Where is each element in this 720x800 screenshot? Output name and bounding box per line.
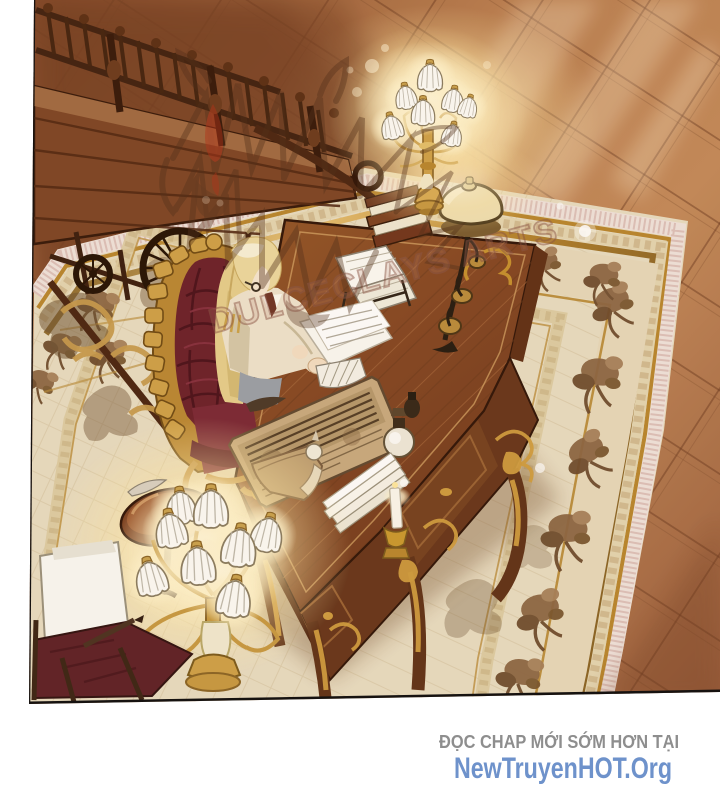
svg-text:ĐỌC CHAP MỚI SỚM HƠN TẠI: ĐỌC CHAP MỚI SỚM HƠN TẠI bbox=[439, 731, 679, 752]
svg-text:NewTruyenHOT.Org: NewTruyenHOT.Org bbox=[454, 752, 672, 785]
